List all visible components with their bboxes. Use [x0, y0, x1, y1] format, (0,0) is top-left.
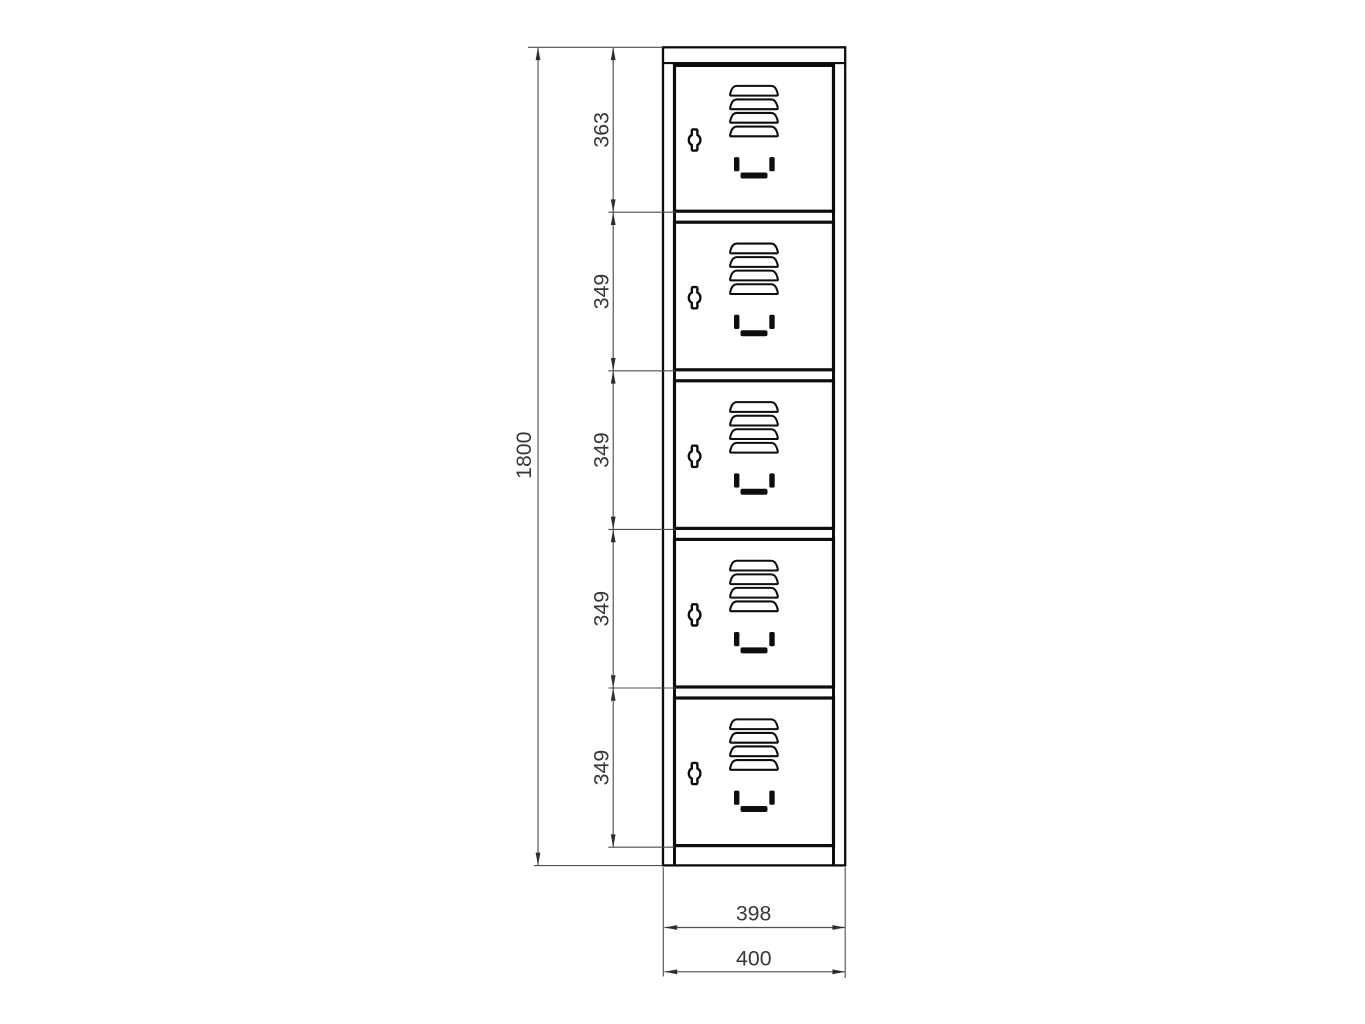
svg-text:400: 400: [736, 946, 772, 970]
svg-text:398: 398: [736, 902, 772, 926]
svg-text:349: 349: [590, 432, 614, 468]
svg-text:349: 349: [590, 274, 614, 310]
svg-text:349: 349: [590, 750, 614, 786]
svg-text:1800: 1800: [512, 431, 536, 479]
svg-text:349: 349: [590, 591, 614, 627]
svg-text:363: 363: [590, 112, 614, 148]
